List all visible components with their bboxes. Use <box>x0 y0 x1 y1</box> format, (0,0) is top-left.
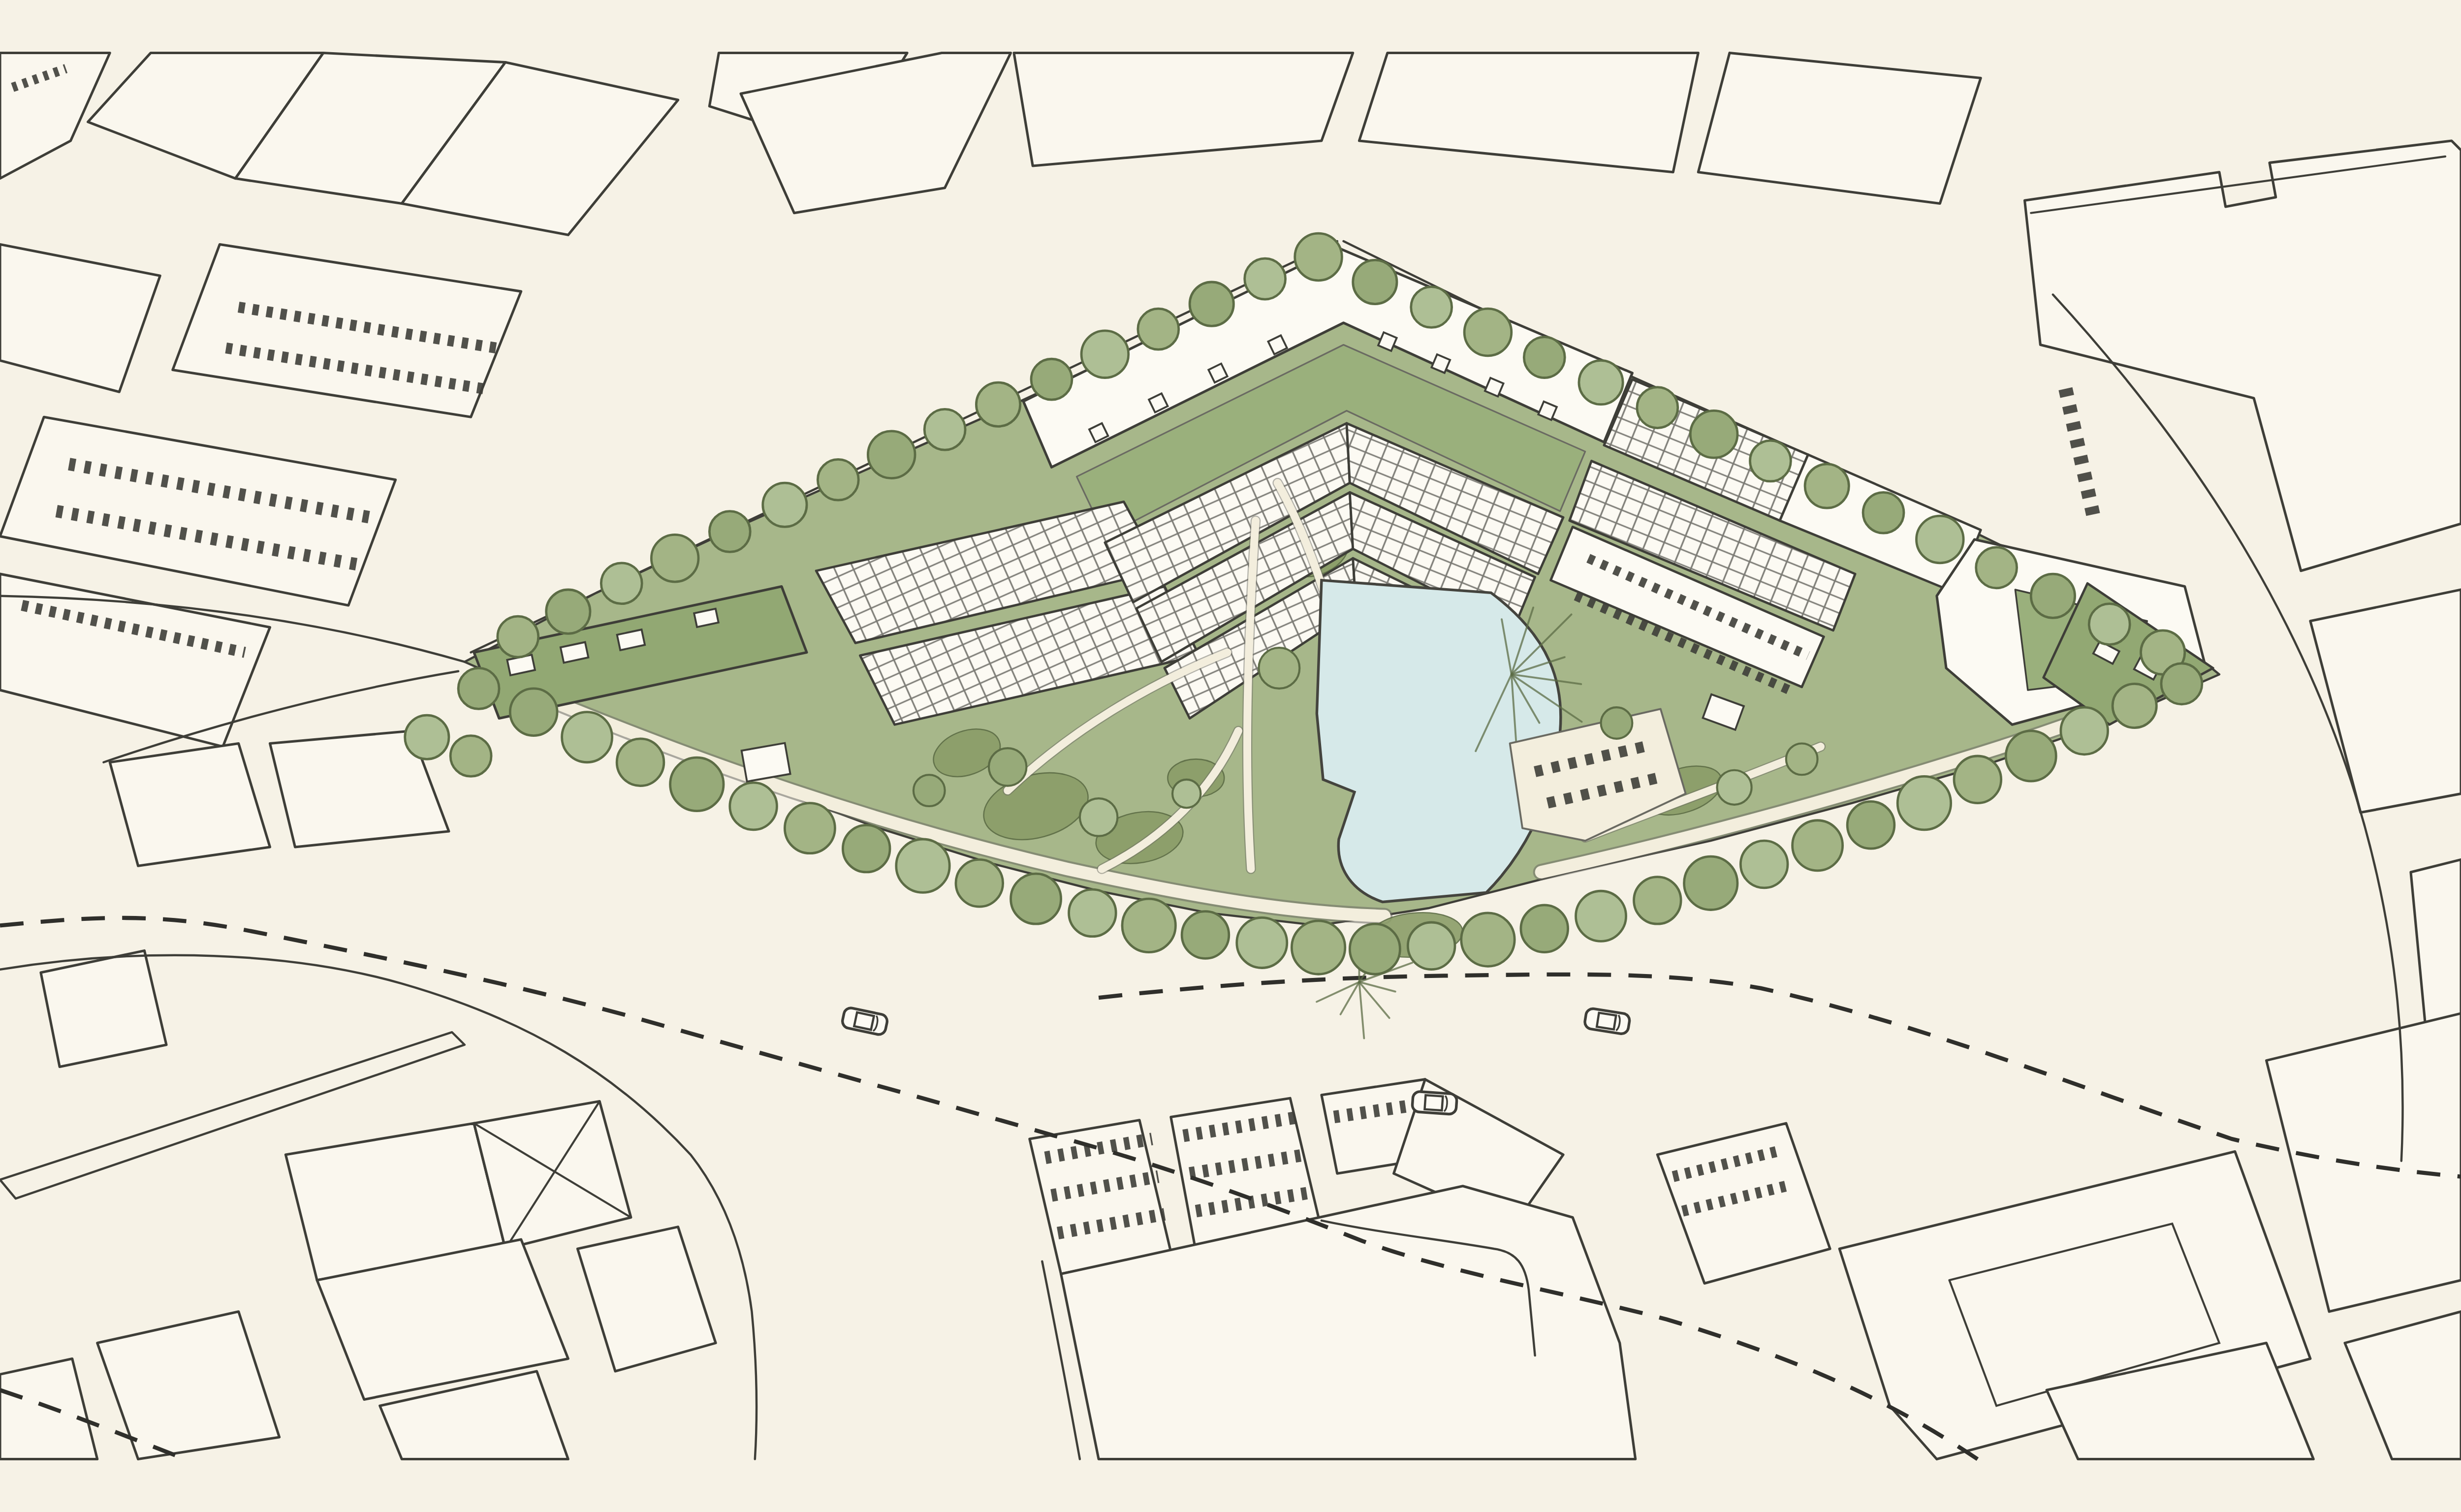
tree <box>1461 913 1514 966</box>
tree <box>1684 856 1737 910</box>
tree <box>510 689 557 736</box>
tree <box>2113 684 2156 727</box>
tree <box>1740 841 1788 888</box>
tree <box>2089 604 2130 645</box>
tree <box>989 748 1027 786</box>
tree <box>896 839 949 892</box>
tree <box>818 459 858 500</box>
tree <box>458 668 499 709</box>
tree <box>843 825 890 872</box>
car <box>1412 1091 1457 1115</box>
tree <box>546 590 590 633</box>
tree <box>2161 663 2202 704</box>
tree <box>1750 441 1791 481</box>
car-cabin <box>1424 1095 1443 1110</box>
tree <box>1408 922 1455 970</box>
tree <box>2031 574 2075 618</box>
tree <box>498 616 538 657</box>
context-building <box>41 950 166 1067</box>
site-plan-svg <box>0 0 2461 1512</box>
tree <box>914 775 945 806</box>
tree <box>1080 798 1118 836</box>
tree <box>1353 260 1397 304</box>
tree <box>1897 776 1951 829</box>
tree <box>956 859 1003 907</box>
tree <box>1172 780 1200 808</box>
tree <box>1182 912 1229 959</box>
tree <box>1411 287 1452 328</box>
tree <box>1793 820 1843 871</box>
tree <box>1031 359 1072 400</box>
tree <box>1637 387 1678 428</box>
tree <box>1601 707 1633 739</box>
tree <box>1011 874 1061 924</box>
tree <box>1576 891 1626 941</box>
tree <box>601 563 642 604</box>
tree <box>1295 233 1342 281</box>
tree <box>2061 707 2108 755</box>
tree <box>1292 921 1345 974</box>
tree <box>1524 337 1565 378</box>
tree <box>976 382 1020 426</box>
tree <box>1786 743 1818 775</box>
tree <box>1350 924 1400 974</box>
tree <box>1976 547 2017 588</box>
tree <box>1521 905 1568 952</box>
tree <box>1081 331 1129 378</box>
car-cabin <box>1597 1013 1616 1030</box>
tree <box>1690 410 1737 458</box>
tree <box>1190 282 1233 326</box>
tree <box>1069 889 1116 937</box>
tree <box>709 511 750 552</box>
tree <box>1259 648 1299 689</box>
tree <box>1847 801 1894 849</box>
tree <box>1634 877 1681 924</box>
tree <box>1122 899 1175 952</box>
tree <box>924 409 965 450</box>
tree <box>651 535 698 582</box>
tree <box>1916 516 1963 563</box>
tree <box>670 757 724 811</box>
tree <box>1245 258 1286 299</box>
tree <box>868 431 915 478</box>
tree <box>763 483 807 527</box>
tree <box>1464 309 1512 356</box>
tree <box>450 736 491 777</box>
tree <box>1237 917 1287 968</box>
masterplan-figure <box>0 0 2461 1512</box>
tree <box>1805 464 1849 508</box>
tree <box>617 739 664 786</box>
tree <box>730 783 777 830</box>
tree <box>1954 756 2001 803</box>
tree <box>1579 360 1623 404</box>
car-cabin <box>854 1012 874 1030</box>
tree <box>1863 492 1904 533</box>
tree <box>562 712 612 762</box>
tree <box>2006 731 2056 781</box>
tree <box>405 715 449 759</box>
tree <box>1138 309 1179 349</box>
garden-pavilion <box>742 743 790 782</box>
tree <box>1717 770 1752 805</box>
tree <box>785 803 835 853</box>
